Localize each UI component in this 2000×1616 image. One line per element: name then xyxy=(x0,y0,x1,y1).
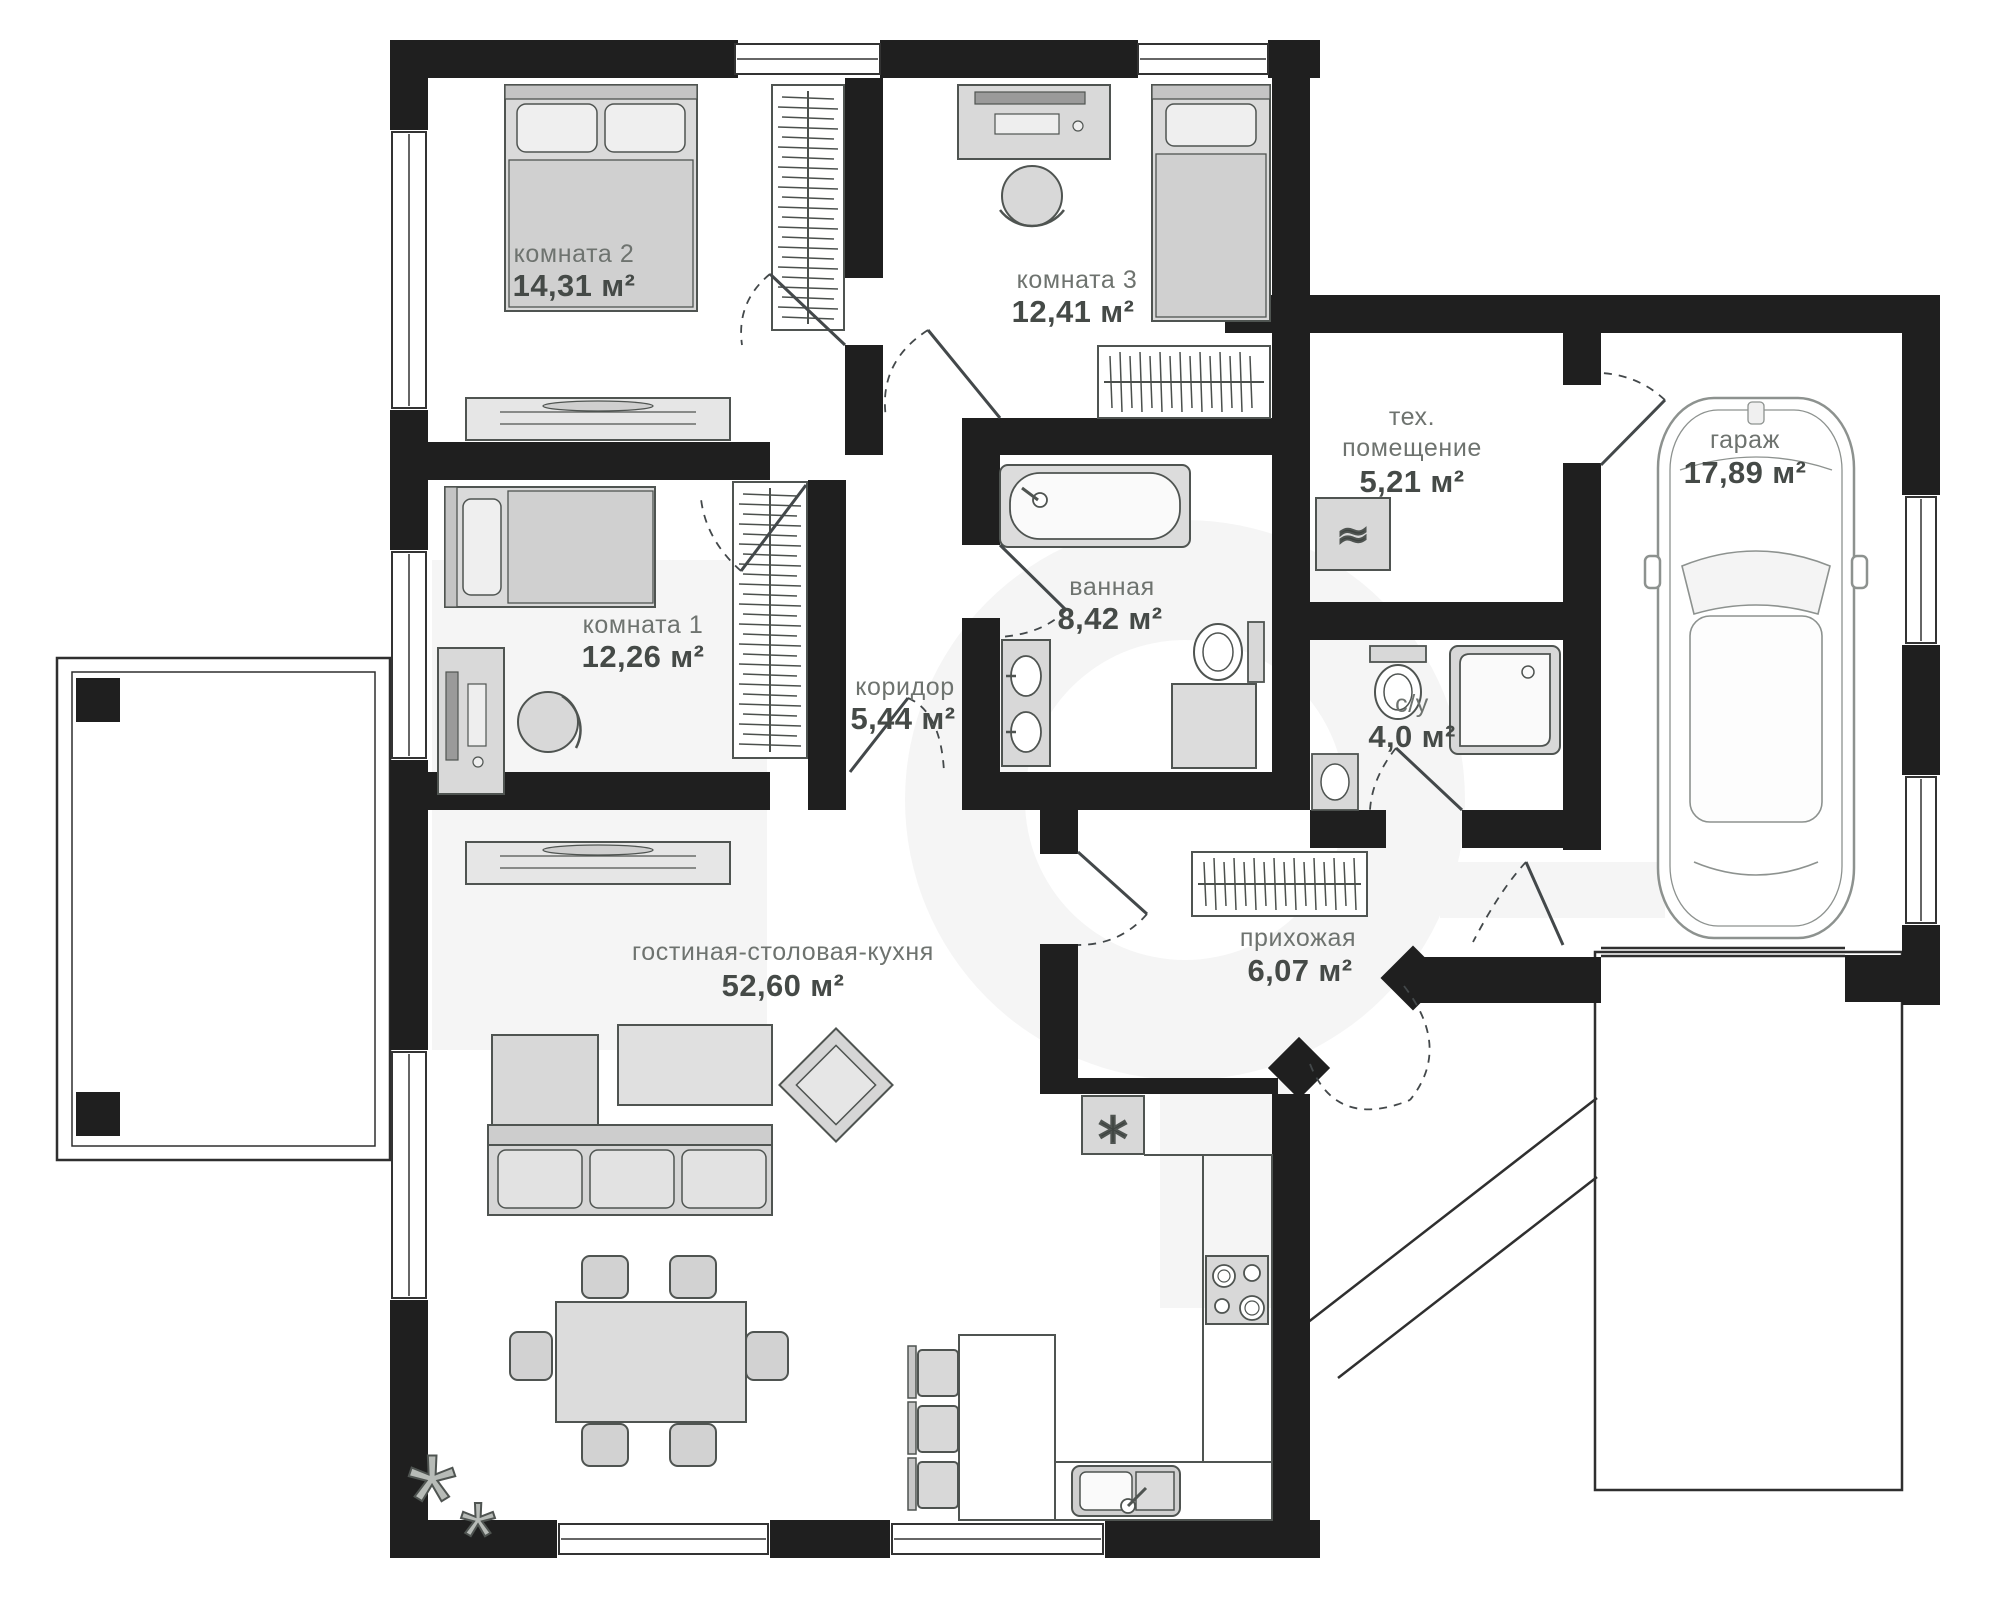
dining-chair xyxy=(670,1256,716,1298)
hallway-furniture xyxy=(1192,852,1367,916)
porch-step-line xyxy=(1298,1098,1597,1330)
door-swing-arc xyxy=(1601,373,1665,400)
room-label-room3: комната 3 xyxy=(1017,266,1138,294)
bar-stools xyxy=(908,1346,958,1510)
room-area-tech: 5,21 м² xyxy=(1359,464,1464,499)
wall-segment xyxy=(1040,1078,1278,1094)
car-roof xyxy=(1690,616,1822,822)
terrace-inner-outline xyxy=(72,672,375,1146)
room-area-room2: 14,31 м² xyxy=(513,268,636,303)
wall-segment xyxy=(1105,1520,1320,1558)
mouse xyxy=(1073,121,1083,131)
bar-stool xyxy=(918,1350,958,1396)
wall-segment xyxy=(1563,295,1940,333)
wall-segment xyxy=(1563,333,1601,385)
wall-segment xyxy=(845,345,883,455)
sofa-cushion xyxy=(498,1150,582,1208)
pillow xyxy=(517,104,597,152)
wall-segment xyxy=(1310,602,1563,640)
wall-segment xyxy=(390,760,428,1050)
wall-segment xyxy=(1902,645,1940,775)
bar-stool xyxy=(918,1462,958,1508)
sink-basin xyxy=(1321,764,1349,800)
porch-step-line xyxy=(1338,1177,1597,1378)
terrace-outline xyxy=(57,658,390,1160)
wall-segment xyxy=(1272,78,1310,455)
toilet-tank xyxy=(1248,622,1264,682)
wall-segment xyxy=(808,480,846,810)
pillow xyxy=(605,104,685,152)
wall-segment xyxy=(845,78,883,278)
room-area-living: 52,60 м² xyxy=(722,968,845,1003)
room-label-wc: с/у xyxy=(1395,690,1429,718)
wall-segment xyxy=(1272,1094,1310,1520)
monitor xyxy=(975,92,1085,104)
wall-segment xyxy=(390,78,428,130)
dining-chair xyxy=(746,1332,788,1380)
bathtub-faucet xyxy=(1033,493,1047,507)
car-grill xyxy=(1748,402,1764,424)
dining-chair xyxy=(582,1424,628,1466)
room-label-tech-line1: тех. xyxy=(1389,403,1435,431)
wall-segment xyxy=(1040,810,1078,854)
wall-segment xyxy=(1268,40,1320,78)
wall-segment xyxy=(880,40,1138,78)
wall-segment xyxy=(390,410,428,550)
door-swing-arc xyxy=(741,274,770,345)
stove-burner xyxy=(1213,1265,1235,1287)
wall-segment xyxy=(390,40,738,78)
car-windshield xyxy=(1682,551,1830,614)
room-label-living: гостиная-столовая-кухня xyxy=(632,938,934,966)
room3-furniture xyxy=(958,85,1270,418)
floor-plan-page: ≈ xyxy=(0,0,2000,1616)
wall-segment xyxy=(962,618,1000,772)
toilet-tank xyxy=(1370,646,1426,662)
dining-chair xyxy=(670,1424,716,1466)
wall-segment xyxy=(1000,418,1272,455)
plant-icon: * xyxy=(460,1483,497,1589)
door-leaf xyxy=(1601,400,1665,465)
monitor xyxy=(446,672,458,760)
tv-screen xyxy=(543,845,653,855)
watermark-shape xyxy=(1440,862,1665,918)
room-area-bathroom: 8,42 м² xyxy=(1057,601,1162,636)
tech-room-fixtures: ≈ xyxy=(1316,498,1390,570)
wall-segment xyxy=(1845,955,1940,1002)
wall-segment xyxy=(1310,810,1386,848)
bed-headboard xyxy=(1152,85,1270,99)
bed-blanket xyxy=(1156,154,1266,317)
wall-segment xyxy=(1310,295,1563,333)
driveway xyxy=(1298,952,1902,1490)
dining-chair xyxy=(582,1256,628,1298)
stove-burner xyxy=(1244,1265,1260,1281)
stool-back xyxy=(908,1346,916,1398)
room-label-room2: комната 2 xyxy=(514,240,635,268)
bed-blanket xyxy=(508,491,653,603)
wall-segment xyxy=(1902,333,1940,495)
desk-chair xyxy=(1002,166,1062,226)
car-mirror xyxy=(1852,556,1867,588)
stove-burner xyxy=(1215,1299,1229,1313)
room-area-room1: 12,26 м² xyxy=(582,639,705,674)
wall-segment xyxy=(962,772,1310,810)
room-area-corridor: 5,44 м² xyxy=(850,701,955,736)
bar-stool xyxy=(918,1406,958,1452)
room-label-bathroom: ванная xyxy=(1069,573,1155,601)
stool-back xyxy=(908,1402,916,1454)
tv-screen xyxy=(543,401,653,411)
car-mirror xyxy=(1645,556,1660,588)
sofa-back xyxy=(488,1125,772,1147)
terrace-column xyxy=(76,1092,120,1136)
room-area-room3: 12,41 м² xyxy=(1012,294,1135,329)
terrace-column xyxy=(76,678,120,722)
pillow xyxy=(463,499,501,595)
dining-table xyxy=(556,1302,746,1422)
floor-plan: ≈ xyxy=(0,0,2000,1616)
room-label-tech-line2: помещение xyxy=(1342,434,1482,462)
room-area-garage: 17,89 м² xyxy=(1684,455,1807,490)
sofa-cushion xyxy=(682,1150,766,1208)
pillow xyxy=(1166,104,1256,146)
room-area-hall: 6,07 м² xyxy=(1247,953,1352,988)
room-label-garage: гараж xyxy=(1710,426,1780,454)
room-label-hall: прихожая xyxy=(1240,924,1356,952)
door-swing-arc xyxy=(885,330,928,418)
stool-back xyxy=(908,1458,916,1510)
room-label-corridor: коридор xyxy=(855,673,955,701)
wall-segment xyxy=(770,1520,890,1558)
terrace xyxy=(57,658,390,1160)
dining-chair xyxy=(510,1332,552,1380)
keyboard xyxy=(995,114,1059,134)
wall-segment xyxy=(1040,944,1078,1080)
door-leaf xyxy=(928,330,1000,418)
sofa-cushion xyxy=(590,1150,674,1208)
keyboard xyxy=(468,684,486,746)
wall-segment xyxy=(1420,957,1601,1003)
wall-segment xyxy=(962,418,1000,545)
kitchen-peninsula xyxy=(959,1335,1055,1520)
wall-segment xyxy=(1563,463,1601,850)
room-label-room1: комната 1 xyxy=(583,611,704,639)
sofa-table xyxy=(618,1025,772,1105)
mouse xyxy=(473,757,483,767)
bed-headboard xyxy=(505,85,697,99)
room-area-wc: 4,0 м² xyxy=(1368,719,1455,754)
stove-burner xyxy=(1240,1296,1264,1320)
plant-icon: * xyxy=(407,1427,458,1573)
washing-machine xyxy=(1172,684,1256,768)
wall-segment xyxy=(1462,810,1563,848)
bed-headboard xyxy=(445,487,457,607)
boiler-waves-icon: ≈ xyxy=(1336,512,1370,558)
driveway-outline xyxy=(1595,952,1902,1490)
wall-segment xyxy=(1272,455,1310,810)
wall-segment xyxy=(428,442,770,480)
shower-tray xyxy=(1460,654,1550,746)
fridge-snowflake-icon: * xyxy=(1098,1105,1128,1175)
